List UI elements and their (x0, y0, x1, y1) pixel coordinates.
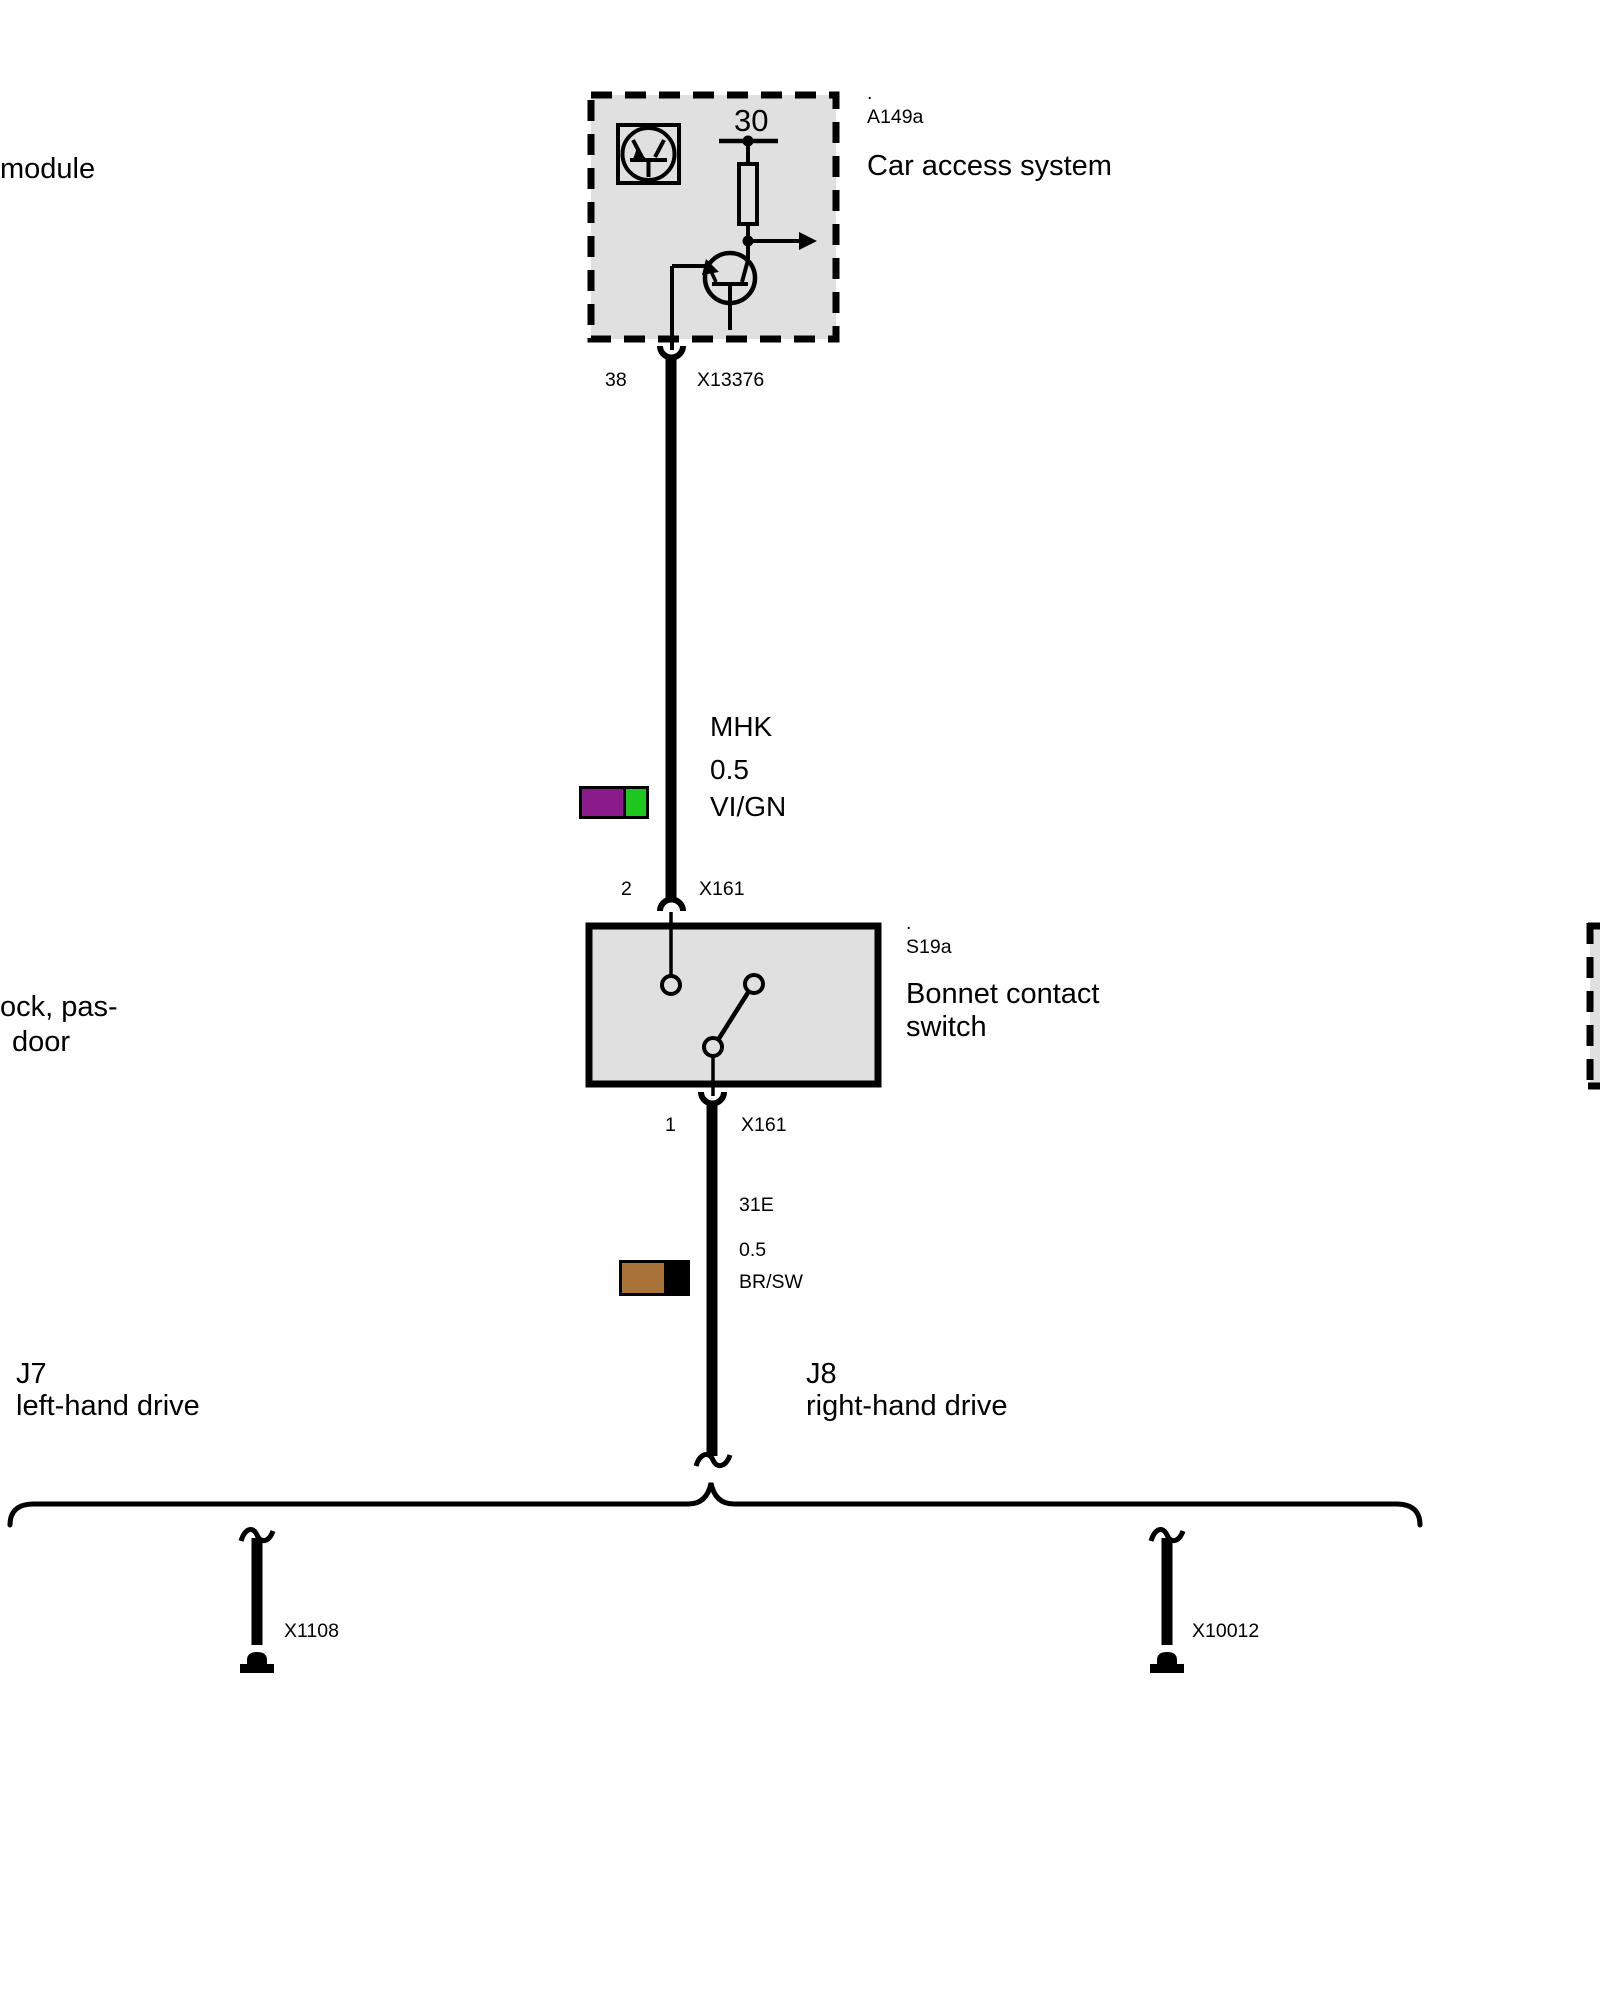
lower-wire-code: 31E (739, 1194, 774, 1216)
pin-38-label: 38 (605, 369, 627, 391)
variant-j7-label: left-hand drive (16, 1390, 200, 1423)
swatch-green (623, 789, 646, 816)
connector-x161-top-label: X161 (699, 878, 745, 900)
pin-2-label: 2 (621, 878, 632, 900)
connector-x161-bottom-label: X161 (741, 1114, 787, 1136)
connector-x10012-label: X10012 (1192, 1620, 1259, 1642)
partial-module-box (1588, 923, 1600, 1089)
swatch-black (664, 1263, 687, 1293)
top-module-dot: . (867, 82, 872, 104)
swatch-brown (622, 1263, 664, 1293)
lower-wire-cross-section: 0.5 (739, 1239, 766, 1261)
ground-connector-x1108 (240, 1529, 274, 1673)
connector-x13376-label: X13376 (697, 369, 764, 391)
variant-j8-code: J8 (806, 1358, 837, 1391)
terminal-30-label: 30 (734, 103, 768, 139)
lower-wire-color-code: BR/SW (739, 1271, 803, 1293)
switch-module-dot: . (906, 912, 911, 934)
left-side-fragment-line1: ock, pas- (0, 991, 118, 1024)
switch-module-code: S19a (906, 936, 952, 958)
wire-color-swatch-vi-gn (579, 786, 649, 819)
connector-x1108-label: X1108 (284, 1620, 339, 1642)
variant-j8-label: right-hand drive (806, 1390, 1008, 1423)
variant-j7-code: J7 (16, 1358, 47, 1391)
top-module-code: A149a (867, 106, 923, 128)
variant-brace (10, 1483, 1420, 1525)
upper-wire-cross-section: 0.5 (710, 754, 749, 786)
car-access-module-box (591, 95, 836, 339)
wire-break-symbol (696, 1454, 730, 1466)
diagram-linework (0, 0, 1600, 2000)
top-module-name: Car access system (867, 150, 1112, 183)
module-side-label: module (0, 153, 95, 186)
switch-module-name: Bonnet contact switch (906, 978, 1144, 1045)
bonnet-switch-box (589, 926, 878, 1084)
pin-1-label: 1 (665, 1114, 676, 1136)
left-side-fragment-line2: door (12, 1026, 70, 1059)
ground-connector-x10012 (1150, 1529, 1184, 1673)
wiring-diagram-page: module . A149a Car access system 30 38 X… (0, 0, 1600, 2000)
swatch-violet (582, 789, 623, 816)
pin2-connector-cup (660, 900, 683, 912)
upper-wire-color-code: VI/GN (710, 791, 786, 823)
wire-color-swatch-br-sw (619, 1260, 690, 1296)
upper-wire-code: MHK (710, 711, 772, 743)
